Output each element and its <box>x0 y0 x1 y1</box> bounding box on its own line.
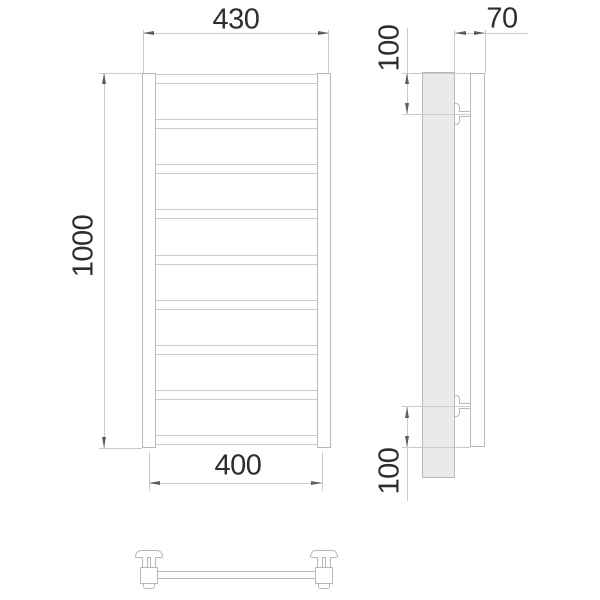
rung <box>156 435 317 445</box>
arrow-down-icon <box>405 436 409 447</box>
arrow-right-icon <box>474 31 485 35</box>
dim-label-100-top: 100 <box>376 25 405 72</box>
rung <box>156 390 317 400</box>
dim-label-100-bottom: 100 <box>376 448 405 495</box>
plan-crossbar-tube <box>157 571 318 579</box>
dim-label-430: 430 <box>213 6 260 35</box>
front-left-rail <box>142 73 156 448</box>
extension-line <box>322 452 323 491</box>
dim-label-1000: 1000 <box>70 215 99 278</box>
right-end-cap <box>318 583 330 589</box>
left-bracket-stem <box>142 557 148 567</box>
dimension-line <box>149 483 322 484</box>
arrow-right-icon <box>311 481 322 485</box>
arrow-left-icon <box>455 31 466 35</box>
right-wall-flange <box>310 550 338 558</box>
rung <box>156 345 317 355</box>
left-bracket-stem <box>150 557 156 567</box>
extension-line <box>402 447 470 448</box>
rung <box>156 119 317 129</box>
arrow-left-icon <box>149 481 160 485</box>
arrow-up-icon <box>405 73 409 84</box>
extension-line <box>99 448 142 449</box>
arrow-left-icon <box>143 31 154 35</box>
right-bracket-stem <box>325 557 331 567</box>
extension-line <box>485 30 486 73</box>
arrow-up-icon <box>405 407 409 418</box>
rung <box>156 209 317 219</box>
left-wall-flange <box>135 550 163 558</box>
extension-line <box>402 73 470 74</box>
arrow-right-icon <box>318 31 329 35</box>
extension-line <box>143 30 144 73</box>
wall-section <box>422 72 455 478</box>
left-collector <box>140 567 158 584</box>
rung <box>156 164 317 174</box>
dimension-line <box>104 73 105 448</box>
extension-line <box>454 30 455 72</box>
right-collector <box>315 567 333 584</box>
rung <box>156 255 317 265</box>
dim-label-400: 400 <box>215 452 262 481</box>
arrow-up-icon <box>102 73 106 84</box>
rung <box>156 74 317 84</box>
dim-label-70: 70 <box>486 5 517 34</box>
dimension-line <box>407 406 408 501</box>
extension-line <box>149 452 150 491</box>
rung <box>156 300 317 310</box>
arrow-down-icon <box>405 103 409 114</box>
side-rail-tube <box>470 73 485 447</box>
left-end-cap <box>143 583 155 589</box>
extension-line <box>402 114 470 115</box>
dimension-line <box>407 28 408 115</box>
front-right-rail <box>317 73 331 448</box>
technical-drawing-canvas: 430 1000 400 70 <box>0 0 600 600</box>
arrow-down-icon <box>102 437 106 448</box>
right-bracket-stem <box>317 557 323 567</box>
extension-line <box>402 406 470 407</box>
extension-line <box>328 30 329 73</box>
